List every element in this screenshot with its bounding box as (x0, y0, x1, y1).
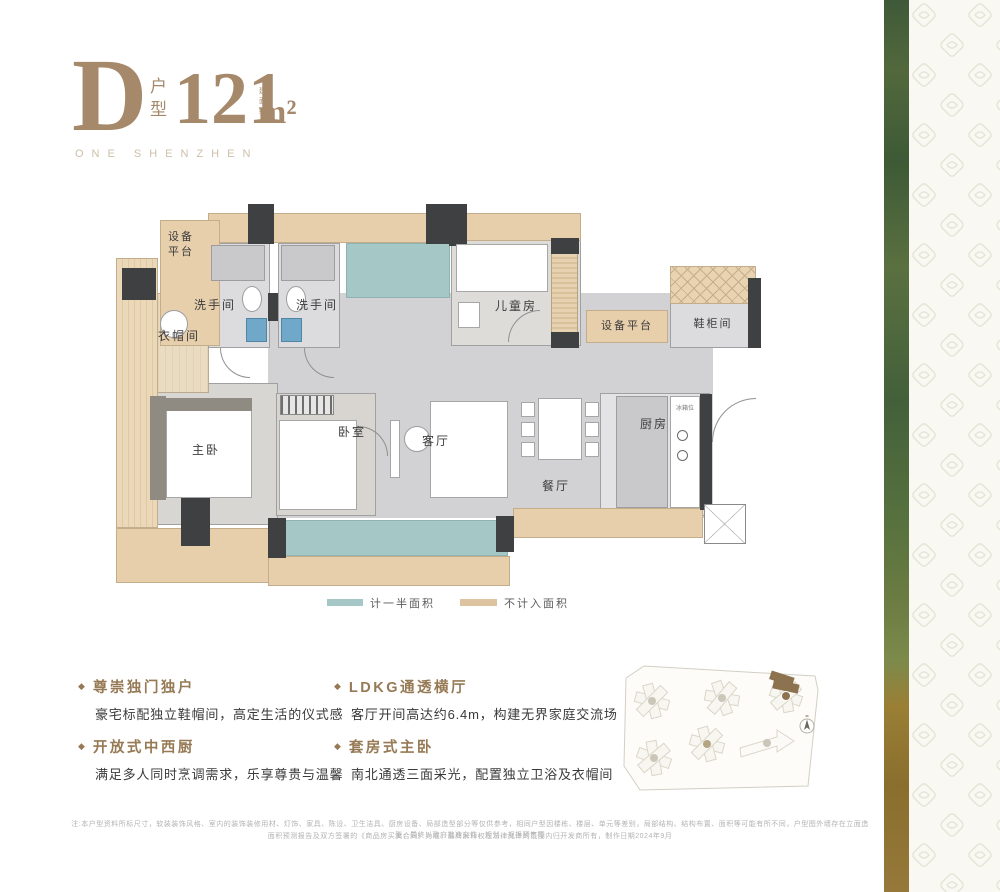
feature-item: ◆ 开放式中西厨 满足多人同时烹调需求，乐享尊贵与温馨 (78, 736, 378, 783)
room-label-bedroom: 卧室 (327, 424, 377, 440)
disclaimer-line-2: 面积预测报告及双方签署的《商品房买卖合同》为准，最终解释权在法律允许的范围内归开… (70, 831, 870, 842)
legend-label-excluded-area: 不计入面积 (504, 595, 569, 611)
room-label-kitchen: 厨房 (630, 416, 678, 432)
wall-segment (122, 268, 156, 300)
wall-segment (181, 498, 210, 546)
unit-type-label: 户型 (150, 76, 170, 122)
feature-title: 开放式中西厨 (93, 736, 195, 757)
entry-door-arc (712, 398, 756, 442)
feature-title: 尊崇独门独户 (93, 676, 195, 697)
south-deck (268, 556, 510, 586)
wall-segment (700, 394, 712, 510)
room-label-bathroom-2: 洗手间 (286, 297, 348, 313)
feature-title: LDKG通透横厅 (349, 676, 468, 697)
floor-plan: 设备平台 洗手间 洗手间 衣帽间 儿童房 设备平台 鞋柜间 主卧 卧室 客厅 餐… (108, 198, 776, 598)
tv-cabinet (390, 420, 400, 478)
diamond-bullet-icon: ◆ (78, 682, 85, 691)
room-label-shoe-room: 鞋柜间 (674, 317, 752, 332)
wall-segment (551, 238, 579, 254)
children-room-head-strip (453, 213, 581, 241)
room-label-equipment-right: 设备平台 (586, 319, 668, 334)
wall-segment (248, 204, 274, 244)
feature-item: ◆ 套房式主卧 南北通透三面采光，配置独立卫浴及衣帽间 (334, 736, 634, 783)
brand-name: ONE SHENZHEN (75, 148, 258, 160)
highlighted-building-badge (782, 692, 791, 701)
stove-burner (677, 450, 688, 461)
room-label-dining-room: 餐厅 (531, 478, 581, 494)
dining-table (538, 398, 582, 460)
room-label-fridge: 冰箱位 (672, 403, 698, 412)
north-bay-window (346, 243, 450, 298)
south-balcony-bay (276, 520, 508, 556)
dining-chair (521, 422, 535, 437)
master-pillows (166, 398, 252, 411)
elevator-shaft (704, 504, 746, 544)
wall-segment (496, 516, 514, 552)
children-desk (458, 302, 480, 328)
dining-chair (585, 422, 599, 437)
legend-swatch-half-area (327, 599, 363, 606)
bedroom-wardrobe (280, 395, 334, 415)
feature-desc: 客厅开间高达约6.4m，构建无界家庭交流场 (351, 704, 634, 723)
room-label-living-room: 客厅 (411, 433, 461, 449)
washbasin (246, 318, 267, 342)
legend-swatch-excluded-area (460, 599, 497, 606)
room-label-bathroom-1: 洗手间 (184, 297, 246, 313)
feature-item: ◆ LDKG通透横厅 客厅开间高达约6.4m，构建无界家庭交流场 (334, 676, 634, 723)
wall-segment (551, 332, 579, 348)
wall-segment (268, 518, 286, 558)
room-label-master-bedroom: 主卧 (180, 442, 232, 458)
washbasin (281, 318, 302, 342)
north-balcony-strip (208, 213, 453, 243)
master-rug (150, 396, 166, 500)
wall-segment (748, 278, 761, 348)
pattern-panel (909, 0, 1000, 892)
diamond-bullet-icon: ◆ (334, 742, 341, 751)
dining-chair (585, 442, 599, 457)
dining-chair (585, 402, 599, 417)
room-label-equipment-left: 设备平台 (164, 230, 198, 260)
shower-unit (211, 245, 265, 281)
room-label-cloakroom: 衣帽间 (146, 328, 212, 344)
wall-segment (268, 293, 278, 321)
room-label-children-room: 儿童房 (483, 298, 549, 314)
dining-chair (521, 402, 535, 417)
feature-desc: 南北通透三面采光，配置独立卫浴及衣帽间 (351, 764, 634, 783)
shower-unit (281, 245, 335, 281)
kitchen-island (616, 396, 668, 508)
bamboo-photo-strip (884, 0, 909, 892)
feature-title: 套房式主卧 (349, 736, 434, 757)
site-map (610, 656, 820, 796)
legend-label-half-area: 计一半面积 (370, 595, 435, 611)
diamond-bullet-icon: ◆ (334, 682, 341, 691)
south-strip-kitchen (513, 508, 703, 538)
sofa (430, 401, 508, 498)
unit-letter: D (72, 44, 147, 148)
wall-segment (449, 204, 467, 246)
area-unit: m² (258, 96, 297, 130)
diamond-bullet-icon: ◆ (78, 742, 85, 751)
feature-item: ◆ 尊崇独门独户 豪宅标配独立鞋帽间，高定生活的仪式感 (78, 676, 378, 723)
wall-segment (426, 204, 450, 244)
children-bed (456, 244, 548, 292)
duct-shaft (551, 243, 578, 346)
stove-burner (677, 430, 688, 441)
door-arc (220, 348, 250, 378)
shoe-cabinets (670, 266, 756, 304)
dining-chair (521, 442, 535, 457)
